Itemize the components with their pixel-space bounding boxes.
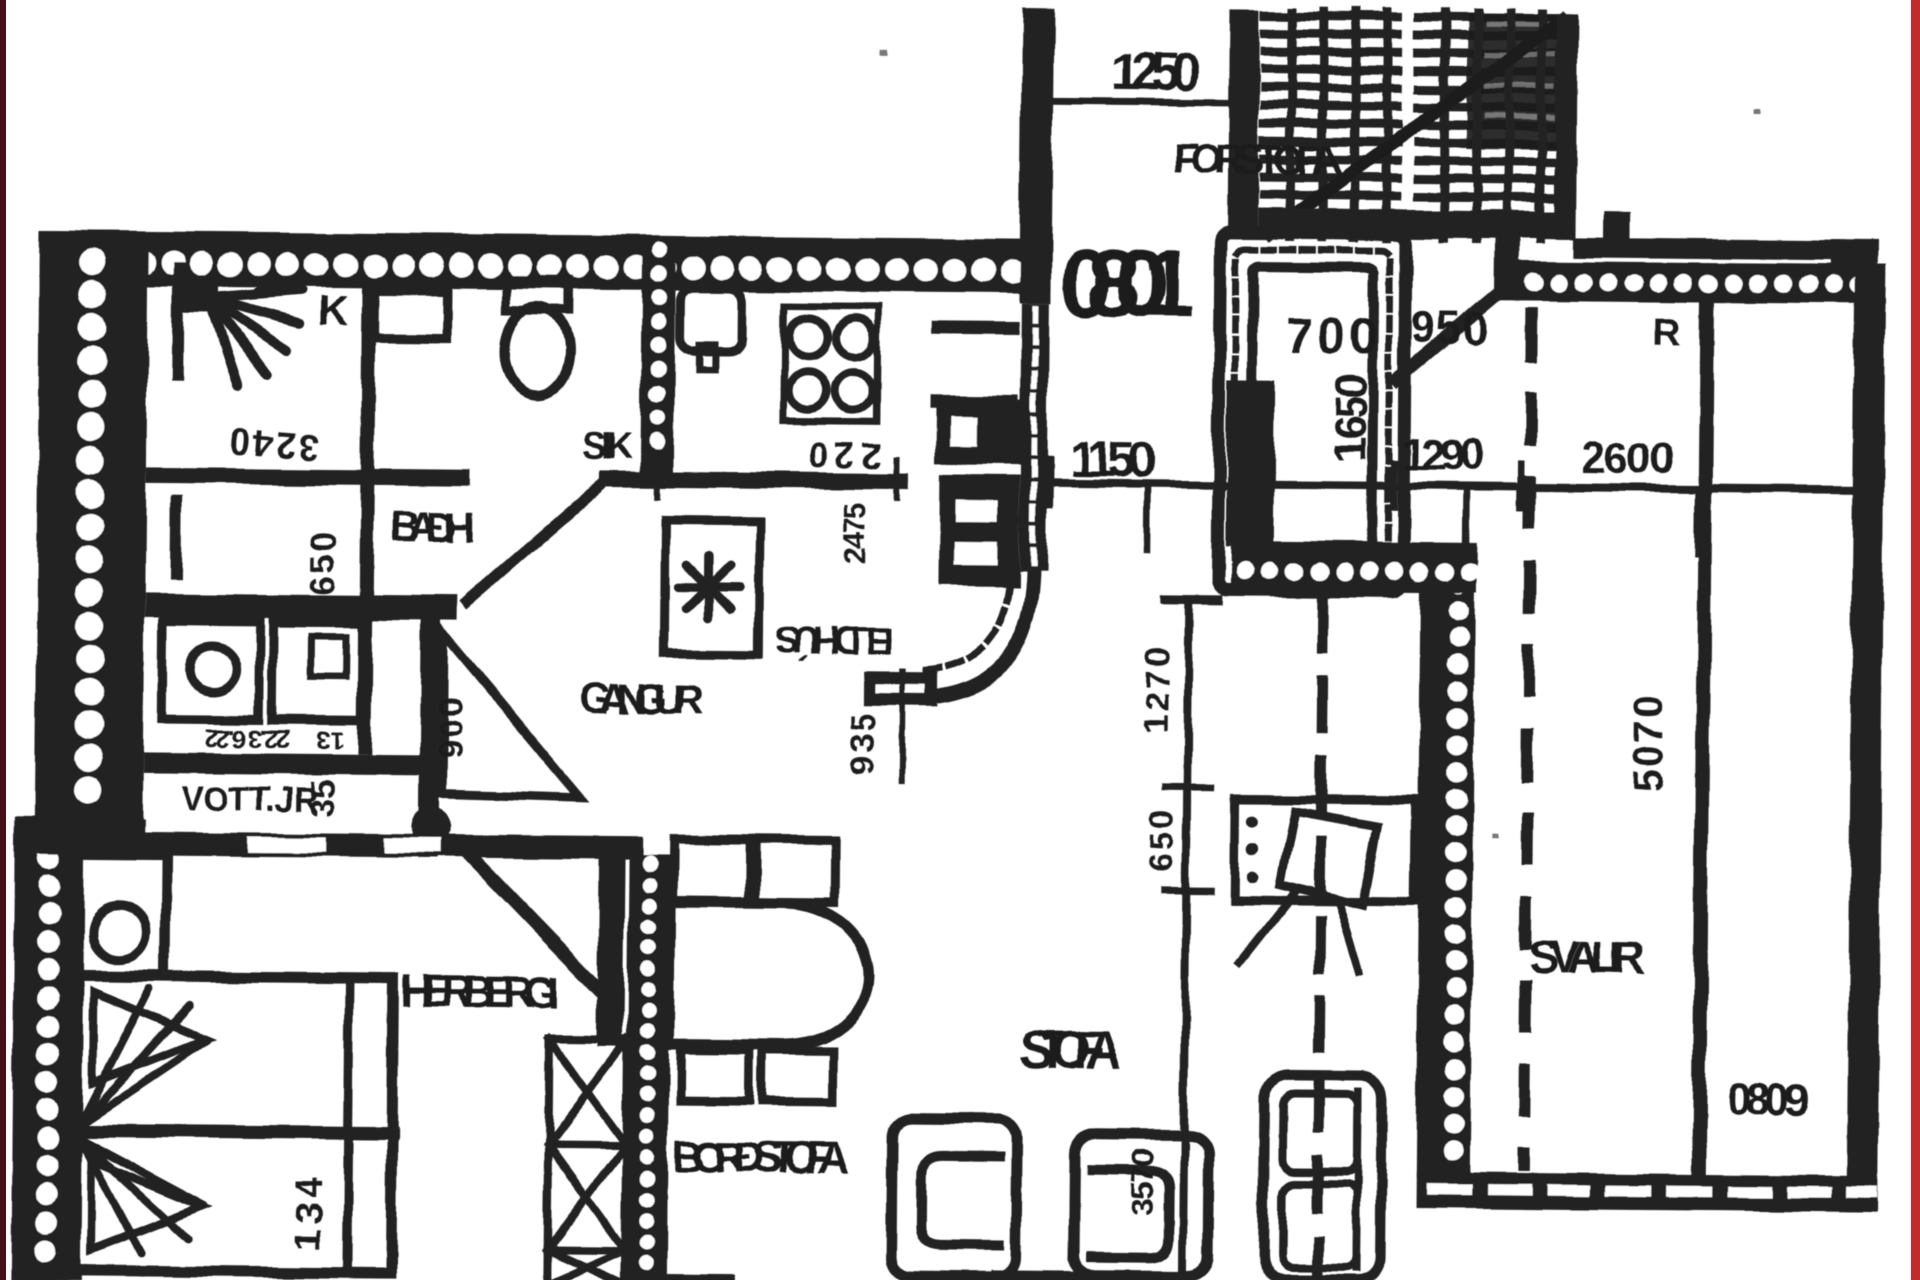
svg-text:SIK: SIK [582,425,632,466]
svg-text:220: 220 [809,435,881,477]
svg-text:3570: 3570 [1124,1149,1161,1215]
svg-text:650: 650 [304,532,343,594]
svg-text:35: 35 [305,778,343,816]
svg-text:900: 900 [431,696,470,758]
svg-text:0801: 0801 [1059,230,1196,338]
svg-text:2600: 2600 [1581,433,1675,483]
svg-text:2475: 2475 [839,502,873,564]
svg-text:134: 134 [288,1178,331,1250]
svg-text:BAÐH: BAÐH [391,503,475,551]
svg-text:650: 650 [1142,810,1181,874]
svg-text:935: 935 [844,713,883,775]
svg-text:ELDHÚS: ELDHÚS [773,618,893,663]
svg-text:950: 950 [1411,304,1487,354]
svg-text:R: R [1652,311,1681,355]
svg-text:HERBERGI: HERBERGI [400,967,560,1017]
svg-text:STOFA: STOFA [1020,1022,1122,1079]
svg-text:1250: 1250 [1111,43,1202,102]
svg-text:K: K [317,286,348,333]
svg-text:1150: 1150 [1069,431,1155,488]
svg-text:BORÐSTOFA: BORÐSTOFA [673,1133,849,1184]
svg-text:1650: 1650 [1326,372,1376,462]
svg-text:22.3 6.22: 22.3 6.22 [203,723,289,754]
svg-text:13: 13 [315,725,344,755]
svg-text:VOTT.JR: VOTT.JR [181,779,319,818]
svg-text:FORSTOFA: FORSTOFA [1172,135,1342,183]
svg-text:SVALIR: SVALIR [1527,931,1645,984]
svg-text:1290: 1290 [1402,430,1484,480]
svg-text:GANGUR: GANGUR [580,675,702,723]
svg-text:0809: 0809 [1727,1076,1809,1126]
svg-text:700: 700 [1285,307,1377,364]
